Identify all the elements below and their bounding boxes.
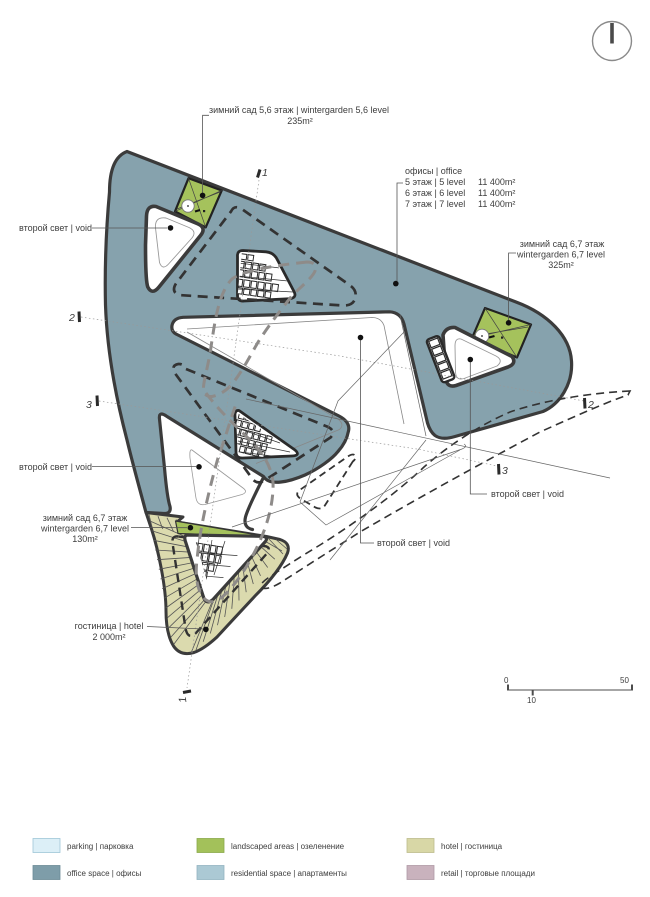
- svg-text:второй свет | void: второй свет | void: [491, 489, 564, 499]
- svg-text:235m²: 235m²: [287, 116, 313, 126]
- svg-text:второй свет | void: второй свет | void: [19, 462, 92, 472]
- svg-text:landscaped areas | озеленени: landscaped areas | озеленение: [231, 842, 345, 851]
- svg-text:parking | парковка: parking | парковка: [67, 842, 134, 851]
- svg-text:2 000m²: 2 000m²: [92, 632, 125, 642]
- svg-text:325m²: 325m²: [548, 260, 574, 270]
- svg-text:второй свет | void: второй свет | void: [377, 538, 450, 548]
- svg-text:130m²: 130m²: [72, 534, 98, 544]
- svg-text:3: 3: [86, 399, 92, 411]
- svg-text:wintergarden 6,7 level: wintergarden 6,7 level: [516, 250, 605, 260]
- svg-text:3: 3: [502, 465, 508, 477]
- svg-text:6 этаж | 6 level: 6 этаж | 6 level: [405, 188, 465, 198]
- svg-text:retail | торговые площади: retail | торговые площади: [441, 869, 535, 878]
- svg-text:второй свет | void: второй свет | void: [19, 223, 92, 233]
- svg-text:зимний сад 5,6 этаж | winterg: зимний сад 5,6 этаж | wintergarden 5,6 l…: [209, 105, 389, 115]
- svg-text:residential space | апартаме: residential space | апартаменты: [231, 869, 347, 878]
- svg-text:0: 0: [504, 676, 509, 685]
- svg-text:10: 10: [527, 696, 536, 705]
- svg-text:гостиница | hotel: гостиница | hotel: [75, 621, 144, 631]
- svg-text:5 этаж | 5 level: 5 этаж | 5 level: [405, 177, 465, 187]
- svg-text:office space | офисы: office space | офисы: [67, 869, 142, 878]
- svg-text:11 400m²: 11 400m²: [478, 199, 515, 209]
- svg-text:офисы | office: офисы | office: [405, 166, 462, 176]
- svg-text:50: 50: [620, 676, 629, 685]
- svg-text:11 400m²: 11 400m²: [478, 177, 515, 187]
- svg-text:wintergarden 6,7 level: wintergarden 6,7 level: [40, 524, 129, 534]
- svg-text:11 400m²: 11 400m²: [478, 188, 515, 198]
- svg-text:зимний сад 6,7 этаж: зимний сад 6,7 этаж: [43, 513, 128, 523]
- svg-text:1: 1: [262, 167, 268, 179]
- svg-text:hotel | гостиница: hotel | гостиница: [441, 842, 503, 851]
- svg-text:2: 2: [587, 399, 594, 411]
- svg-text:7 этаж | 7 level: 7 этаж | 7 level: [405, 199, 465, 209]
- svg-text:2: 2: [68, 312, 75, 324]
- svg-text:зимний сад 6,7 этаж: зимний сад 6,7 этаж: [520, 239, 605, 249]
